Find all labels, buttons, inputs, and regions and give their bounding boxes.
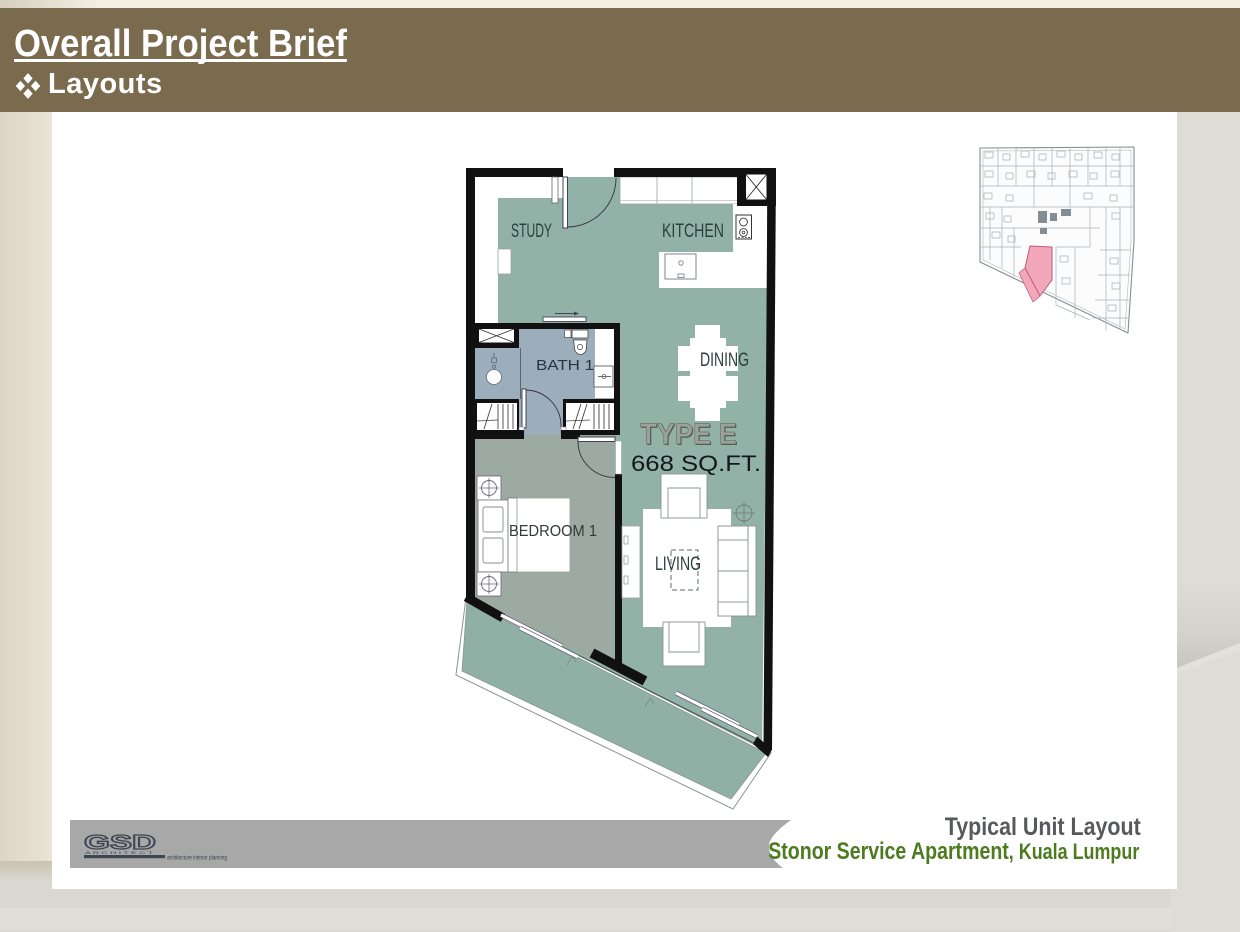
svg-text:BEDROOM 1: BEDROOM 1 <box>509 523 597 540</box>
svg-text:TYPE E: TYPE E <box>640 418 737 451</box>
svg-text:KITCHEN: KITCHEN <box>662 221 724 242</box>
svg-text:A R C H I T E C T: A R C H I T E C T <box>85 850 154 855</box>
svg-text:LIVING: LIVING <box>655 554 701 575</box>
svg-text:architecture interior planning: architecture interior planning <box>167 856 227 862</box>
svg-text:STUDY: STUDY <box>511 221 552 242</box>
svg-text:668 SQ.FT.: 668 SQ.FT. <box>631 451 761 476</box>
svg-text:BATH 1: BATH 1 <box>536 357 594 374</box>
svg-text:DINING: DINING <box>700 350 749 371</box>
